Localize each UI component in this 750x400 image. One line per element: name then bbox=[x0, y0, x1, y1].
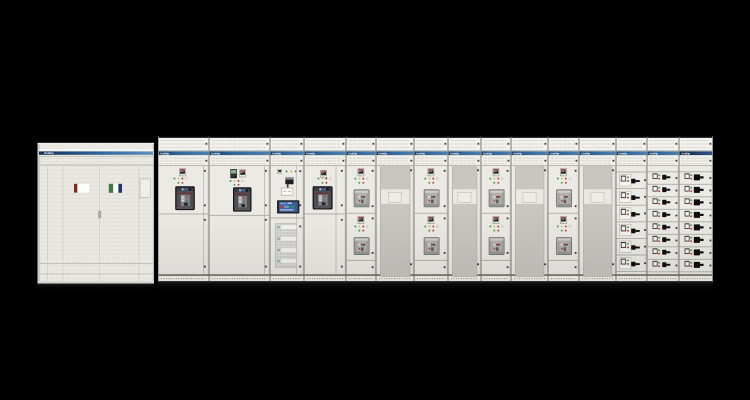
svg-text:Uniklip: Uniklip bbox=[618, 151, 627, 155]
svg-text:Uniklip: Uniklip bbox=[681, 151, 690, 155]
svg-text:Uniklip: Uniklip bbox=[550, 151, 559, 155]
svg-text:Uniklip: Uniklip bbox=[513, 151, 522, 155]
svg-text:Uniklip: Uniklip bbox=[483, 151, 492, 155]
svg-text:Uniklip: Uniklip bbox=[450, 151, 459, 155]
svg-text:Uniklip: Uniklip bbox=[160, 151, 169, 155]
svg-text:Uniklip: Uniklip bbox=[348, 151, 357, 155]
svg-text:Uniklip: Uniklip bbox=[44, 151, 54, 155]
svg-text:Uniklip: Uniklip bbox=[649, 151, 658, 155]
svg-text:Uniklip: Uniklip bbox=[581, 151, 590, 155]
svg-text:Uniklip: Uniklip bbox=[272, 151, 281, 155]
svg-text:Uniklip: Uniklip bbox=[211, 151, 220, 155]
svg-text:Uniklip: Uniklip bbox=[416, 151, 425, 155]
svg-text:Uniklip: Uniklip bbox=[378, 151, 387, 155]
svg-text:Uniklip: Uniklip bbox=[306, 151, 315, 155]
